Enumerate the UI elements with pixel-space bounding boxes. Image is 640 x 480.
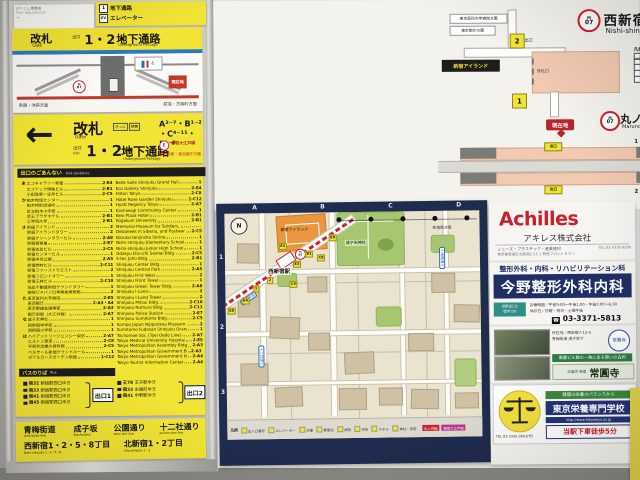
exit-code: 2-C5 (102, 192, 112, 196)
exit-code: 2 (111, 290, 114, 294)
directory-row: ホテルローズガーデン新宿 1-C12 (23, 354, 114, 360)
legend-item-icon (634, 76, 640, 83)
restroom-icon: ♿ (134, 57, 162, 71)
grid-letter-a: A (252, 204, 257, 211)
marunouchi-line-symbol: M07 (578, 9, 601, 32)
exit-1-marker: 1 (512, 93, 527, 108)
dir-right-label: 荻窪・方南町方面 (163, 101, 197, 107)
elevator-icon: EV (99, 14, 108, 23)
legend-item: きっぷうりば (634, 76, 640, 82)
place-name-en: Shinjuku Center Bldg. (116, 262, 160, 266)
map-legend-item: 学校 (354, 426, 368, 432)
bus-icon (117, 388, 121, 392)
exit-code: 2 (200, 289, 203, 293)
grid-row-1: 1 (219, 254, 223, 261)
temple-name-bar: 日蓮宗 新宿 常圓寺 (552, 363, 634, 380)
place-name-en: Odakyu Dai-ichi Seimei Bldg. (116, 251, 175, 256)
place-name-en: Shinjuku Central Park (116, 268, 160, 272)
road-3-en: Koen-dori Ave. (114, 432, 135, 436)
exit-code: 2-E4 (102, 181, 112, 185)
dot-leader (182, 335, 191, 336)
place-name-en: Tokyo Metropolitan Government Bldg. (117, 349, 187, 354)
place-name-en: Shinjuku Mitsui Bldg. (117, 301, 160, 305)
directory-english-column: Belle Salle Shinjuku Grand Hall 1 Eco Ga… (116, 179, 204, 365)
dot-leader (176, 253, 190, 254)
platform-exit-tag-2: 出口 (544, 185, 562, 194)
platform-2-label: 2 池袋方面 (634, 187, 640, 195)
left-arrow-glyph: ← (25, 114, 54, 154)
area-map-board: A B C D 1 2 3 (216, 200, 491, 466)
exit-code: 1 (200, 278, 203, 282)
map-legend-item: 郵便局 (316, 426, 333, 432)
compass-icon: N (230, 217, 247, 234)
exit-code: 2-C5 (192, 229, 202, 233)
clinic-name: 今野整形外科内科 (493, 273, 631, 298)
fare-mini-tag: 精算 (129, 123, 140, 131)
directory-row: Tokyo Tourist Information Center 2-A4 (117, 359, 203, 365)
dot-leader (184, 248, 198, 249)
dot-leader (184, 362, 191, 363)
place-name-jp: 新宿アイランド (27, 225, 55, 229)
bus-exit-1-box: 出口1 (92, 388, 113, 402)
gate-label: 改札口 (537, 68, 549, 74)
map-legend-icon (392, 425, 398, 431)
college-catchphrase: 健康は栄養のバランスから (546, 390, 632, 399)
bus-destination: 新宿駅西口ゆき (41, 400, 71, 406)
left-sign-frame: のりこし精算機 Fare Adjustment → 1 地下通路 EV エレベー… (2, 0, 218, 473)
passage-en: Underground Passage (118, 43, 157, 47)
place-name-jp: ホテルローズガーデン新宿 (28, 356, 77, 361)
platform-1-label: 1 荻窪方面 (634, 137, 640, 145)
dot-leader (186, 340, 191, 341)
place-name-jp: 平和祈念展示資料館 (28, 345, 65, 349)
map-exit-tag: 2 (267, 277, 273, 284)
place-name-jp: エステック情報ビル (27, 187, 64, 191)
clinic-tel: ☎ 03-3371-5813 (552, 313, 621, 323)
map-exit-tag: C5 (289, 281, 297, 288)
place-name-en: Shinjuku Front Tower (116, 279, 158, 283)
temple-photo-1 (494, 329, 550, 355)
bus-exit-2-box: 出口2 (184, 385, 205, 399)
dot-leader (180, 183, 198, 184)
map-legend-icon (316, 426, 322, 432)
grid-row-2: 2 (220, 324, 224, 331)
map-legend-item: 出入口番号 (241, 427, 265, 433)
place-name-jp: 小田急第一生命ビル (27, 193, 64, 197)
gate-en: Gate (75, 135, 86, 140)
bus-route-number: 宿41 (29, 394, 39, 400)
bus-route-row: 宿41 中野駅ゆき (117, 392, 177, 399)
place-name-jp: ハイアットリージェンシー東京 (28, 334, 85, 339)
map-exit-tag: B1 (305, 251, 313, 258)
temple-catchphrase: 高層ビル群の一角にある憩いの古刹 (552, 353, 632, 362)
bus-route-number: 宿41 (123, 393, 133, 399)
dot-leader (188, 346, 191, 347)
college-url: http://www.tokyoeiyo.ac.jp (546, 416, 632, 423)
directory-title-jp: 出口のごあんない (20, 169, 62, 176)
place-name-en: Shinjuku Green Tower Bldg. (116, 284, 172, 289)
bus-title-en: Bus (50, 370, 56, 374)
place-name-jp: ヒルトン東京 (28, 340, 53, 344)
exit-code: 2-B1 (102, 219, 113, 223)
map-exit-tag: E5 (228, 308, 236, 315)
place-name-jp: 新宿住友ビル (27, 247, 52, 251)
passage-label: 地下通路 (110, 4, 132, 12)
place-name-jp: 新宿三井ビル (27, 280, 52, 284)
bus-route-number: 宿33 (29, 387, 39, 393)
grid-letter-b: B (320, 203, 325, 210)
map-legend-icon (354, 426, 360, 432)
map-exit-tag: C8 (317, 254, 325, 261)
map-legend-label: 出入口番号 (248, 428, 265, 433)
dot-leader (86, 287, 110, 288)
xsec-diagram: ♿ M07 現在地 (12, 53, 202, 101)
marunouchi-legend-tag: 丸ノ内線 (422, 425, 440, 431)
arrow-glyph: → (16, 15, 92, 20)
map-legend-icon (299, 427, 305, 433)
place-name-jp: 工学院大学 (27, 220, 48, 224)
map-legend-label: 神社・寺院 (399, 426, 416, 431)
road-4-en: Junisha-dori Ave. (160, 430, 184, 435)
temple-seal-icon: 常圓寺 (608, 329, 630, 351)
frame-rail-left (2, 1, 13, 473)
college-name: 東京栄養専門学校 (546, 400, 632, 415)
place-name-en: Shinjuku I-Land Tower (117, 295, 162, 299)
bus-route-number: 宿32 (29, 381, 39, 387)
place-name-en: Memorial Museum for Soldiers, (116, 224, 180, 229)
place-name-en: Shinjuku Police Station (117, 311, 164, 315)
to-shinjuku-label: 新宿駅方面 (432, 225, 451, 231)
passage-mini-sign: 1 地下通路 EV エレベーター (96, 1, 206, 26)
phone-icon: ☎ (552, 317, 560, 324)
bus-icon (23, 389, 27, 393)
exit-code: 1-C12 (101, 355, 114, 359)
exit-code: 2-C8 (191, 191, 201, 195)
exit-code: 2 (110, 268, 113, 272)
road-2-en: Narukozaka (74, 432, 91, 436)
place-name-en: Hotel Rose Garden Shinjuku (116, 197, 173, 202)
exit-code: 2-A4 (193, 360, 204, 364)
oedo-destination: 都庁前駅・東京都庁方面 (159, 151, 201, 157)
exit-code: 2-A3 (103, 306, 114, 310)
dot-leader (188, 357, 191, 358)
map-canvas: 新宿アイランド 成子天神社 (224, 210, 482, 440)
college-tel: TEL.03-3342-3661(代) (496, 433, 533, 438)
bus-destination: 永福町ゆき (135, 386, 157, 392)
dot-leader (188, 324, 199, 325)
corridor-to-platform (550, 91, 559, 117)
college-walk-note: 当駅下車徒歩5分 (546, 424, 634, 439)
bus-destination: 新宿駅西口ゆき (41, 393, 71, 399)
directory-row: Tokyo Metropolitan Government Bldg. 2-A3… (117, 348, 203, 354)
place-name-jp: 京王プラザホテル (27, 214, 60, 218)
dot-leader (187, 232, 191, 233)
line-name-en: Marunouchi Line (622, 124, 640, 130)
platform-level-line (17, 95, 199, 100)
place-name-en: Detainees in Siberia, and Postwar Repatr… (116, 230, 186, 235)
achilles-tel: TEL.03-5338-9200 (598, 245, 631, 249)
place-name-en: Naruko-tenjinsha Shrine (116, 235, 165, 240)
dot-leader (174, 286, 191, 287)
place-name-en: Kashiwagi Community Center (116, 208, 177, 213)
place-name-jp: 新宿野村ビル (27, 263, 52, 267)
marunouchi-line-symbol-small: M07 (600, 111, 620, 131)
map-legend-label: ホテル (379, 426, 389, 431)
exit-code: 1 (199, 181, 202, 185)
place-name-jp: 成子天神社 (28, 318, 49, 322)
platform-exit-tag-1: 出口 (544, 142, 562, 151)
island-map-label: 新宿アイランド (281, 227, 309, 233)
place-name-en: Nishi-shinjuku Elementary School (116, 241, 184, 246)
map-legend-item: 交番 (299, 427, 313, 433)
temple-access: 青梅街道 成子坂下 (552, 336, 584, 342)
bus-destination: 新宿駅西口ゆき (41, 387, 71, 393)
bus-destination: 王子駅ゆき (135, 380, 157, 386)
place-name-en: Kogakuin University (116, 219, 157, 223)
place-name-en: S-tec Joho Bldg. (116, 257, 148, 261)
map-legend-label: エレベーター (275, 427, 295, 432)
guide-title-en: Nishi-shinjuku Sta. Guide (606, 27, 640, 35)
directory-japanese-column: あ エコギャラリー新宿 2-E4 エステック情報ビル 2-B1 (22, 180, 115, 360)
oedo-line-name: 都営大江戸線 (171, 140, 195, 146)
place-name-en: Nishi-shinjuku Junior High School (116, 246, 183, 251)
exit-code: 1 (200, 327, 203, 331)
place-name-en: Tokyo Metropolitan Assembly Bldg. (117, 344, 187, 349)
exit-code: 2-C10 (100, 279, 113, 283)
place-name-jp: 東京都庁 (28, 302, 44, 306)
dot-leader (86, 336, 102, 337)
map-legend-item: 病院 (337, 426, 351, 432)
track-band (438, 160, 640, 173)
place-name-jp: 柏木特別出張所 (27, 204, 56, 208)
konno-clinic-ad: 整形外科・内科・リハビリテーション科 今野整形外科内科 当駅出口1徒歩3分 診療… (489, 261, 636, 324)
exit-word: 出口 (72, 34, 80, 40)
exit-code: 1 (111, 317, 114, 321)
exit-code: 2-E7 (103, 241, 113, 245)
place-name-en: Hyatt Regency Tokyo (116, 203, 159, 207)
directory-row: Shinjuku Nomura Bldg. 2-C11 (117, 304, 203, 310)
map-legend-item: 神社・寺院 (392, 425, 416, 431)
road-label-junisha: 十二社通り (258, 345, 265, 367)
map-legend-icon (268, 427, 274, 433)
road-1-en: Ome-kaido Ave. (24, 433, 47, 437)
exit-code: 2 (110, 230, 113, 234)
dot-leader (180, 226, 200, 227)
place-name-jp: 新宿グリーンタワービル (27, 236, 72, 240)
bus-icon (117, 381, 121, 385)
place-name-jp: 住友不動産新宿グランドタワー (27, 285, 84, 290)
exit-number-icon: 1 (99, 4, 108, 13)
street-names-sign: 青梅街道 Ome-kaido Ave. 成子坂 Narukozaka 公園通り … (15, 418, 206, 462)
advert-column: Achilles アキレス株式会社 シューズ・プラスチック・産業資材 東京都新宿… (489, 201, 637, 464)
achilles-company: アキレス株式会社 (523, 232, 591, 245)
bus-destination: 新宿駅西口ゆき (41, 381, 71, 387)
bus-route-number: 宿45 (29, 400, 39, 406)
place-name-jp: 東京医科大学病院 (28, 296, 61, 300)
ticket-mini-tag: きっぷ (113, 123, 128, 131)
place-name-jp: 新宿アイランドタワー (27, 231, 68, 235)
map-legend-icon (337, 426, 343, 432)
tocho-direction-box: 東京都庁方面 (450, 26, 496, 36)
dot-leader (188, 329, 199, 330)
place-name-en: Tokyo Metropolitan Government No.1 Bldg. (117, 355, 187, 360)
place-name-jp: エコギャラリー新宿 (27, 182, 64, 186)
directory-title-en: Exit Guidance (66, 171, 90, 175)
exit-code: 1 (111, 328, 114, 332)
place-name-jp: 柏木地域センター (27, 198, 60, 202)
clinic-access-tag: 当駅出口1徒歩3分 (494, 302, 526, 316)
elevator-car-icon (109, 78, 119, 92)
place-name-jp: 東京都議会議事堂 (28, 307, 61, 311)
map-exit-tag: E1 (279, 243, 287, 250)
xsec-header: 改札 Gate 出口 1・2・ 地下通路 Underground Passage (12, 27, 202, 51)
exit-directory-sign: 出口のごあんない Exit Guidance あ エコギャラリー新宿 2-E4 … (13, 165, 205, 417)
map-legend-icon (372, 426, 378, 432)
place-name-en: Belle Salle Shinjuku Grand Hall (116, 181, 179, 186)
area-2-en: Kita-shinjuku 1・2 (124, 448, 150, 453)
place-name-en: Tokyo Tourist Information Center (117, 360, 183, 365)
place-name-jp: 都庁前駅（大江戸線） (28, 312, 69, 316)
bus-group-1: 宿32 新宿駅西口ゆき 宿33 新宿駅西口ゆき 宿41 新宿駅西口ゆき (23, 380, 85, 406)
station-map-label: 西新宿駅 (267, 267, 291, 275)
place-name-jp: 区立柏木小学校 (27, 209, 56, 213)
bus-route-number: 宿33 (123, 386, 133, 392)
scales-emblem (498, 390, 540, 432)
place-name-en: Eco Gallery Shinjuku (116, 186, 158, 190)
gate-label-en: Gate (32, 43, 42, 48)
exit-code: 2-A4 (192, 355, 203, 359)
hospital-direction-box: 東京医科大学病院方面 (450, 14, 508, 24)
place-name-jp: 新宿フロントタワー (27, 274, 64, 278)
place-name-en: Keio Plaza Hotel (116, 214, 149, 218)
place-name-jp: 新宿警察署 (27, 242, 48, 246)
bus-icon (117, 394, 121, 398)
exit-2-marker: 2 (510, 33, 525, 48)
grid-letter-d: D (456, 201, 461, 208)
place-name-en: Tochomae Sta. (Toei Oedo Line) (117, 333, 181, 338)
place-name-en: Shinjuku I-Land (116, 290, 148, 294)
bus-route-row: 宿45 新宿駅西口ゆき (23, 399, 85, 406)
nutrition-college-ad: TEL.03-3342-3661(代) 健康は栄養のバランスから 東京栄養専門学… (492, 383, 637, 444)
exit-code: 1 (199, 240, 202, 244)
dot-leader (188, 351, 190, 352)
paid-concourse-area: 改札口 (532, 51, 620, 93)
area-1-en: Nishi-shinjuku 1・2・5・8 (24, 450, 61, 455)
temple-photo-2 (494, 356, 550, 380)
map-legend-item: エレベーター (268, 427, 295, 433)
station-guide-board: M07 西新宿駅構内案内 Nishi-shinjuku Sta. Guide ↘… (213, 0, 640, 211)
bus-destination: 中野駅ゆき (135, 393, 157, 399)
oedo-line-symbol: E (159, 140, 169, 150)
place-name-en: Sumitomo Fudosan Shinjuku Grand Tower (117, 327, 187, 332)
place-name-en: Tokyo Medical University Hospital (117, 338, 185, 343)
passage-en: Underground Passage (123, 157, 160, 161)
temple-ad: 所在地／西新宿7-12-5 青梅街道 成子坂下 常圓寺 高層ビル群の一角にある憩… (490, 325, 636, 382)
place-name-jp: 新宿ファーストウエスト (27, 269, 72, 273)
achilles-address: 東京都新宿区北新宿2-21-1 新宿フロントタワー (497, 252, 575, 258)
dot-leader (177, 210, 197, 211)
map-exit-tag: E2 (293, 261, 301, 268)
map-exit-tag: E8 (329, 234, 337, 241)
place-name-jp: 新宿中央公園 (27, 258, 52, 262)
place-name-en: Shinjuku First West (116, 273, 155, 277)
directory-header: 出口のごあんない Exit Guidance (17, 167, 205, 178)
dot-leader (185, 242, 198, 243)
exit-code: 2-A5 (192, 268, 203, 272)
island-building-label: 新宿アイランド (442, 60, 500, 72)
gate-arrow-sign: ← 改札 Gate きっぷ 精算 出口 Exit 1・2・ 地下通路 Under… (13, 113, 203, 165)
station-signage-photo: のりこし精算機 Fare Adjustment → 1 地下通路 EV エレベー… (0, 0, 640, 480)
bus-route-number: 王78 (123, 380, 133, 386)
place-name-en: Sompo Japan Nipponkoa Museum of Art (117, 322, 187, 327)
achilles-ad: Achilles アキレス株式会社 シューズ・プラスチック・産業資材 東京都新宿… (489, 201, 636, 260)
elevator-shaft (100, 56, 124, 96)
dir-left-label: 新宿・池袋方面 (19, 103, 48, 109)
guide-legend: 凡例 Legend 改札口 エレベーター (634, 47, 640, 85)
exit-word-en: Exit (73, 151, 79, 155)
place-name-jp: ベルサール新宿グランドホール (28, 350, 85, 355)
map-legend-label: 学校 (361, 426, 368, 431)
map-legend-label: 交番 (306, 427, 313, 432)
marunouchi-line-symbol: M07 (73, 80, 86, 93)
exit-word-label: 出口 (525, 37, 533, 43)
place-name-en: Shinjuku Sumitomo Bldg. (117, 317, 169, 322)
exit-code: 2-B1 (191, 219, 202, 223)
dot-leader (165, 308, 189, 309)
bus-icon (23, 401, 27, 405)
place-name-jp: 西新宿中学校 (28, 323, 53, 327)
bus-header: バスのりば Bus (19, 368, 115, 377)
grid-row-3: 3 (221, 389, 225, 396)
partial-sign-right-edge (630, 388, 640, 480)
road-label-kotakibashi: 小滝橋通り (439, 247, 446, 269)
dot-leader (169, 319, 191, 320)
dot-leader (86, 352, 110, 353)
exit-code: 2-C5 (192, 316, 202, 320)
shrine-map-label: 成子天神社 (345, 240, 367, 246)
map-legend-label: 郵便局 (323, 427, 333, 432)
bus-icon (23, 395, 27, 399)
exit-code: 2-C11 (189, 306, 202, 310)
directory-row: Hotel Rose Garden Shinjuku 1-C12 (116, 196, 202, 202)
grid-letter-c: C (388, 202, 393, 209)
bus-icon (23, 382, 27, 386)
map-exit-tag: 1 (253, 285, 259, 292)
map-legend-label: 病院 (344, 427, 351, 432)
map-legend-strip: 凡例 出入口番号 エレベーター (227, 416, 482, 440)
bus-title-jp: バスのりば (22, 369, 47, 376)
place-name-jp: 損保ジャパン日本興亜美術館 (27, 290, 80, 295)
you-are-here-badge: 現在地 (169, 75, 187, 88)
map-legend-title: 凡例 (230, 428, 238, 434)
place-name-en: Shinjuku Nomura Bldg. (117, 306, 164, 311)
place-name-jp: 西新宿小学校 (28, 329, 53, 333)
exit-code: 2-A7 (191, 202, 202, 206)
bus-group-2: 王78 王子駅ゆき 宿33 永福町ゆき 宿41 中野駅ゆき (117, 379, 177, 399)
map-legend-item: ホテル (372, 426, 389, 432)
fare-adjust-sign: のりこし精算機 Fare Adjustment → (14, 4, 94, 29)
map-exit-tag: E4 (241, 297, 249, 304)
oedo-legend-tag: 都営大江戸線 (441, 424, 465, 430)
elevator-label: エレベーター (110, 14, 143, 22)
map-legend-icon (241, 427, 247, 433)
dot-leader (174, 199, 188, 200)
place-name-en: Hilton Tokyo (116, 192, 141, 196)
station-cross-section-sign: 改札 Gate 出口 1・2・ 地下通路 Underground Passage (12, 27, 203, 113)
place-name-jp: 新宿センタービル (27, 252, 60, 256)
achilles-logo: Achilles (499, 208, 578, 231)
exit-code: 1 (110, 203, 113, 207)
